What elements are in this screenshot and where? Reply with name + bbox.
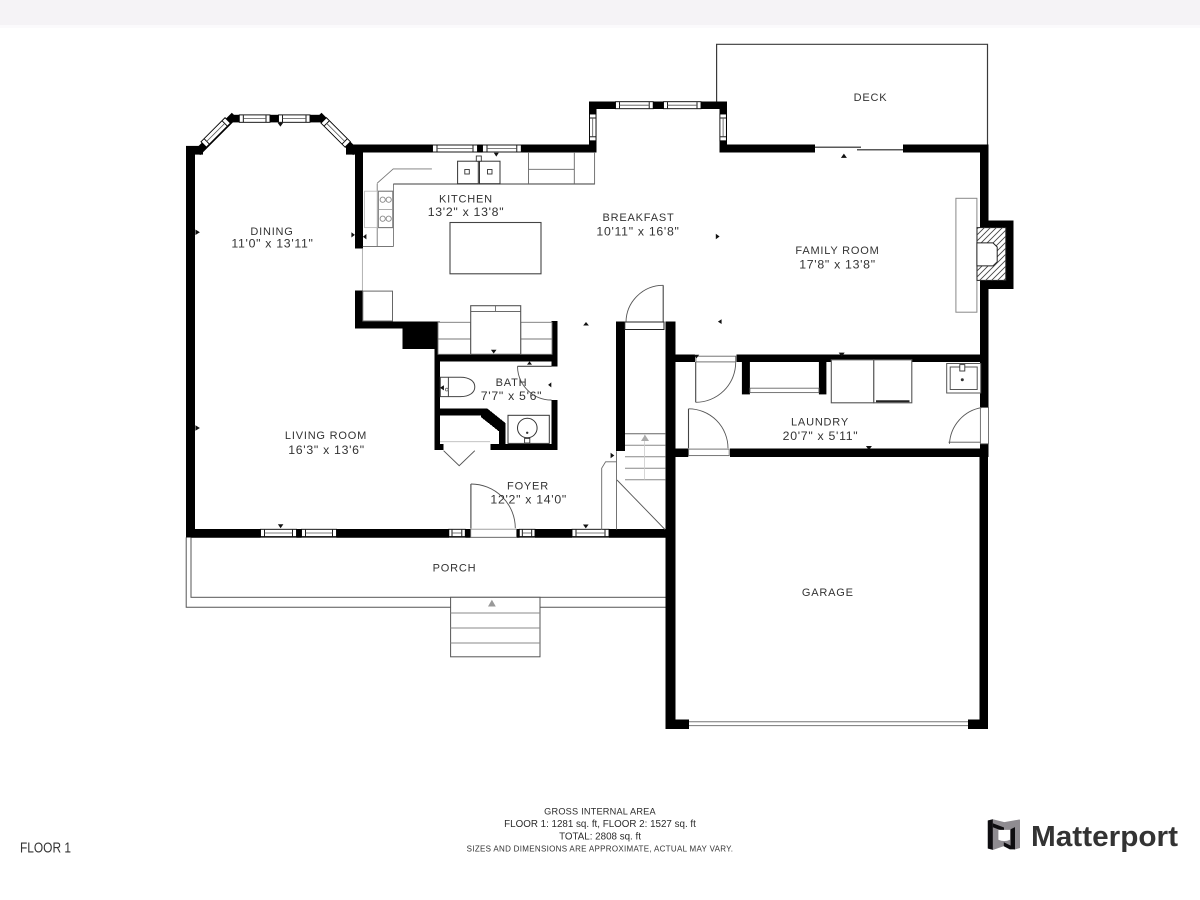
svg-text:FLOOR 1: FLOOR 1 bbox=[20, 840, 71, 857]
svg-text:16'3" x 13'6": 16'3" x 13'6" bbox=[288, 443, 365, 457]
svg-text:GROSS INTERNAL AREA: GROSS INTERNAL AREA bbox=[544, 807, 656, 817]
svg-text:Matterport: Matterport bbox=[1031, 821, 1179, 853]
svg-text:KITCHEN: KITCHEN bbox=[439, 194, 493, 206]
svg-text:BATH: BATH bbox=[496, 377, 528, 389]
svg-text:DECK: DECK bbox=[854, 92, 888, 104]
svg-text:TOTAL: 2808 sq. ft: TOTAL: 2808 sq. ft bbox=[559, 832, 641, 843]
svg-text:FLOOR 1: 1281 sq. ft, FLOOR 2:: FLOOR 1: 1281 sq. ft, FLOOR 2: 1527 sq. … bbox=[504, 819, 696, 830]
svg-text:GARAGE: GARAGE bbox=[802, 587, 854, 599]
svg-text:12'2" x 14'0": 12'2" x 14'0" bbox=[490, 493, 567, 507]
svg-text:PORCH: PORCH bbox=[433, 563, 477, 575]
svg-text:13'2" x 13'8": 13'2" x 13'8" bbox=[428, 205, 505, 219]
svg-text:FOYER: FOYER bbox=[507, 481, 549, 493]
svg-text:BREAKFAST: BREAKFAST bbox=[603, 212, 675, 224]
svg-text:17'8" x 13'8": 17'8" x 13'8" bbox=[799, 258, 876, 272]
svg-text:LAUNDRY: LAUNDRY bbox=[791, 417, 849, 429]
svg-text:20'7" x 5'11": 20'7" x 5'11" bbox=[783, 429, 859, 443]
svg-text:10'11" x 16'8": 10'11" x 16'8" bbox=[596, 225, 679, 239]
svg-text:FAMILY ROOM: FAMILY ROOM bbox=[795, 245, 879, 257]
svg-text:7'7" x 5'6": 7'7" x 5'6" bbox=[481, 389, 542, 403]
svg-text:SIZES AND DIMENSIONS ARE APPRO: SIZES AND DIMENSIONS ARE APPROXIMATE, AC… bbox=[467, 845, 734, 854]
svg-text:LIVING ROOM: LIVING ROOM bbox=[285, 430, 367, 442]
svg-text:11'0" x 13'11": 11'0" x 13'11" bbox=[231, 237, 313, 251]
